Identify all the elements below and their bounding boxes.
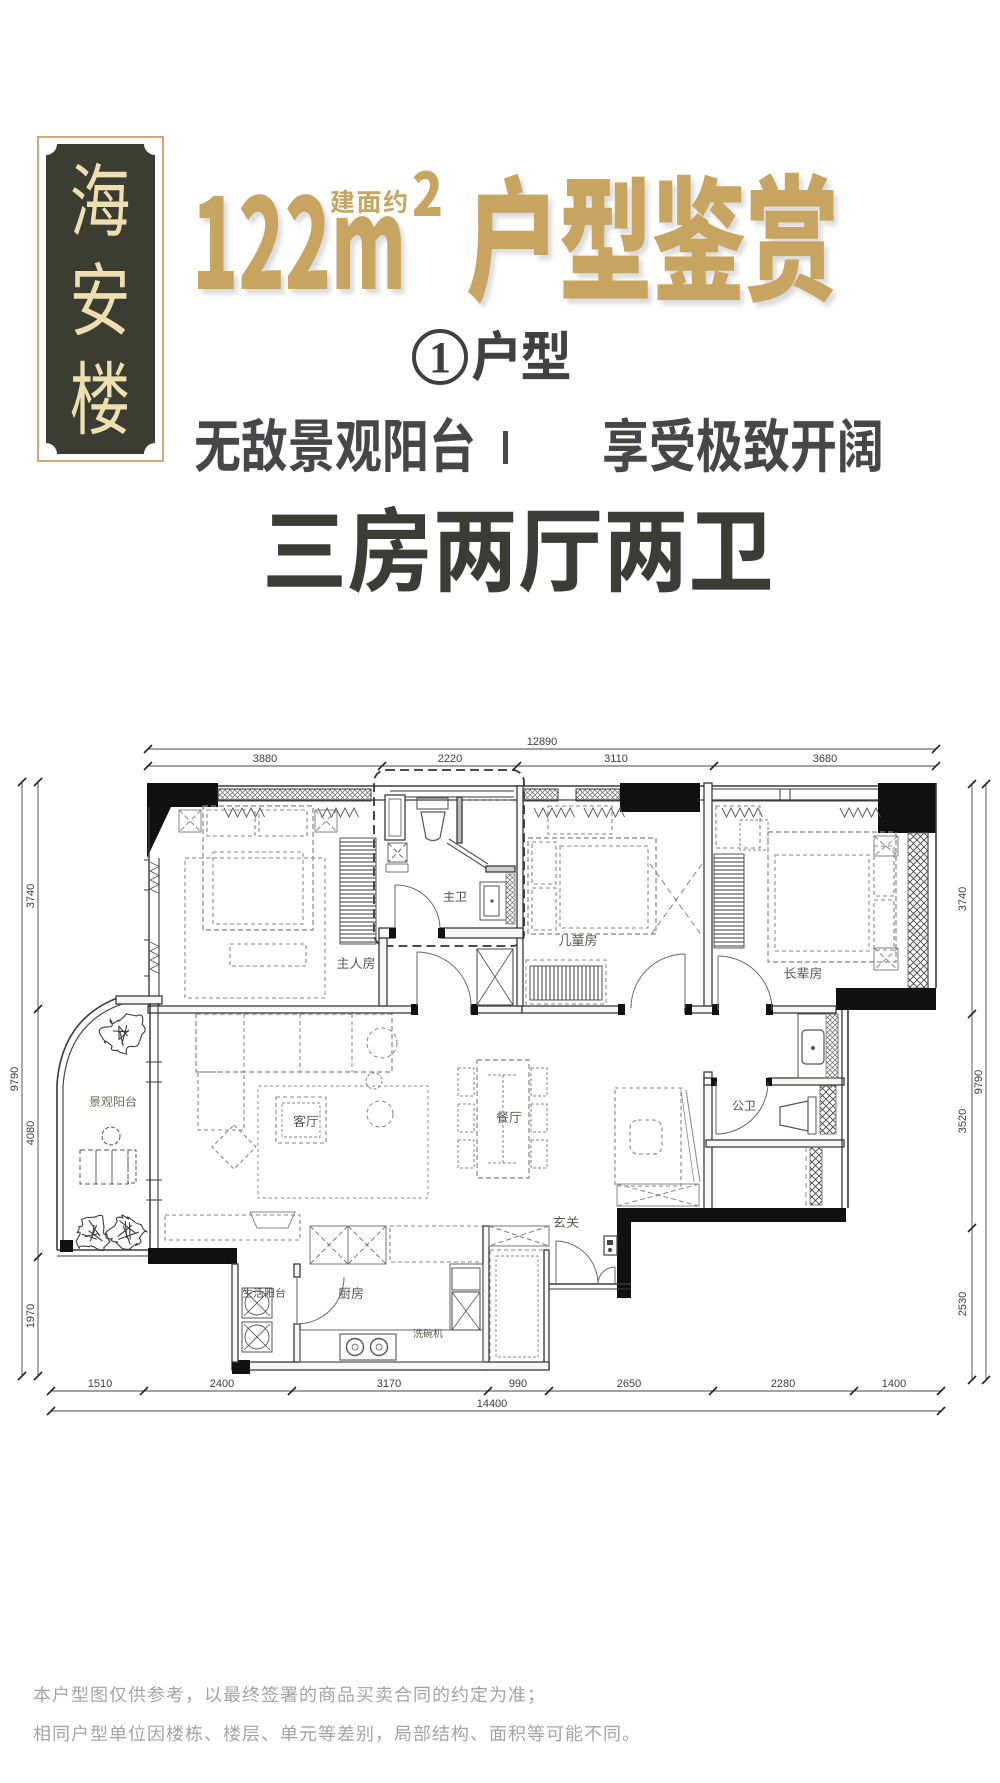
svg-text:9790: 9790 — [973, 1070, 985, 1094]
svg-text:2280: 2280 — [771, 1378, 795, 1390]
svg-text:1510: 1510 — [88, 1378, 112, 1390]
svg-text:1970: 1970 — [25, 1304, 37, 1328]
svg-text:14400: 14400 — [477, 1398, 508, 1410]
svg-text:4080: 4080 — [25, 1121, 37, 1145]
svg-text:3740: 3740 — [25, 884, 37, 908]
svg-text:3880: 3880 — [253, 753, 277, 765]
svg-text:2220: 2220 — [438, 753, 462, 765]
svg-text:2530: 2530 — [957, 1292, 969, 1316]
svg-text:3170: 3170 — [377, 1378, 401, 1390]
svg-text:1: 1 — [429, 333, 451, 382]
svg-text:3110: 3110 — [604, 753, 628, 765]
svg-text:12890: 12890 — [527, 736, 558, 748]
svg-text:3740: 3740 — [957, 887, 969, 911]
svg-text:2650: 2650 — [617, 1378, 641, 1390]
svg-text:1400: 1400 — [882, 1378, 906, 1390]
svg-text:3520: 3520 — [957, 1109, 969, 1133]
svg-text:2400: 2400 — [210, 1378, 234, 1390]
svg-text:3680: 3680 — [813, 753, 837, 765]
svg-text:990: 990 — [509, 1378, 527, 1390]
svg-text:9790: 9790 — [9, 1067, 21, 1091]
